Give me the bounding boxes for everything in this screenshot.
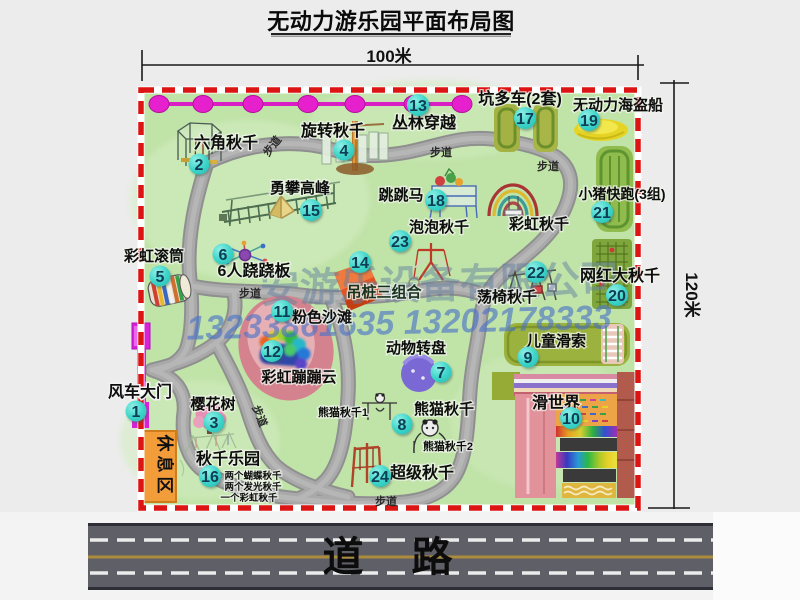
svg-text:步道: 步道 <box>375 494 397 508</box>
svg-text:休息区: 休息区 <box>155 434 175 498</box>
svg-text:两个发光秋千: 两个发光秋千 <box>224 481 282 493</box>
svg-text:彩虹秋千: 彩虹秋千 <box>508 215 569 233</box>
svg-text:道: 道 <box>323 534 364 580</box>
svg-text:粉色沙滩: 粉色沙滩 <box>292 308 352 326</box>
svg-text:秋千乐园: 秋千乐园 <box>196 449 260 468</box>
svg-text:泡泡秋千: 泡泡秋千 <box>409 218 469 236</box>
svg-text:勇攀高峰: 勇攀高峰 <box>270 179 331 197</box>
svg-text:12: 12 <box>263 344 281 361</box>
svg-text:11: 11 <box>274 304 291 321</box>
svg-text:15: 15 <box>302 203 320 220</box>
svg-text:超级秋千: 超级秋千 <box>389 463 454 482</box>
svg-text:8: 8 <box>398 417 407 434</box>
svg-text:19: 19 <box>580 113 598 130</box>
svg-text:旋转秋千: 旋转秋千 <box>300 121 365 140</box>
svg-text:20: 20 <box>608 288 626 305</box>
svg-text:步道: 步道 <box>430 145 452 159</box>
svg-text:23: 23 <box>391 234 409 251</box>
svg-text:21: 21 <box>593 205 611 222</box>
svg-text:16: 16 <box>201 469 219 486</box>
svg-text:熊猫秋千: 熊猫秋千 <box>414 400 474 418</box>
svg-text:一个彩虹秋千: 一个彩虹秋千 <box>220 492 278 504</box>
svg-text:熊猫秋千2: 熊猫秋千2 <box>423 439 473 453</box>
svg-text:10: 10 <box>562 411 580 428</box>
svg-text:熊猫秋千1: 熊猫秋千1 <box>318 405 368 419</box>
svg-text:步道: 步道 <box>537 159 559 173</box>
svg-text:小猪快跑(3组): 小猪快跑(3组) <box>578 186 665 202</box>
svg-text:跳跳马: 跳跳马 <box>378 186 423 204</box>
svg-text:24: 24 <box>371 469 389 486</box>
svg-text:14: 14 <box>351 255 369 272</box>
svg-text:风车大门: 风车大门 <box>108 382 172 401</box>
svg-text:无动力游乐园平面布局图: 无动力游乐园平面布局图 <box>267 9 515 34</box>
svg-text:17: 17 <box>516 111 534 128</box>
svg-text:步道: 步道 <box>239 286 261 300</box>
svg-text:7: 7 <box>437 365 446 382</box>
svg-text:22: 22 <box>527 265 545 282</box>
svg-text:13: 13 <box>409 98 427 115</box>
svg-text:樱花树: 樱花树 <box>190 395 235 413</box>
svg-text:1: 1 <box>132 404 141 421</box>
svg-text:18: 18 <box>427 193 445 210</box>
svg-text:6人跷跷板: 6人跷跷板 <box>218 261 292 280</box>
svg-text:两个蝴蝶秋千: 两个蝴蝶秋千 <box>224 470 282 482</box>
svg-text:2: 2 <box>195 157 204 174</box>
svg-text:六角秋千: 六角秋千 <box>194 133 258 152</box>
svg-text:吊桩三组合: 吊桩三组合 <box>346 283 422 301</box>
svg-text:120米: 120米 <box>682 272 702 318</box>
svg-text:网红大秋千: 网红大秋千 <box>580 266 660 285</box>
svg-text:荡椅秋千: 荡椅秋千 <box>477 288 537 306</box>
svg-text:坑多车(2套): 坑多车(2套) <box>478 89 562 108</box>
svg-text:彩虹蹦蹦云: 彩虹蹦蹦云 <box>260 368 336 386</box>
svg-text:彩虹滚筒: 彩虹滚筒 <box>123 247 184 265</box>
svg-text:5: 5 <box>156 269 165 286</box>
svg-text:动物转盘: 动物转盘 <box>386 339 446 357</box>
svg-text:3: 3 <box>210 415 219 432</box>
svg-text:4: 4 <box>340 143 349 160</box>
svg-text:9: 9 <box>524 350 533 367</box>
svg-text:100米: 100米 <box>366 46 412 66</box>
svg-text:6: 6 <box>219 247 228 264</box>
svg-text:儿童滑索: 儿童滑索 <box>525 332 586 350</box>
svg-text:丛林穿越: 丛林穿越 <box>392 113 457 132</box>
svg-text:路: 路 <box>412 534 454 580</box>
